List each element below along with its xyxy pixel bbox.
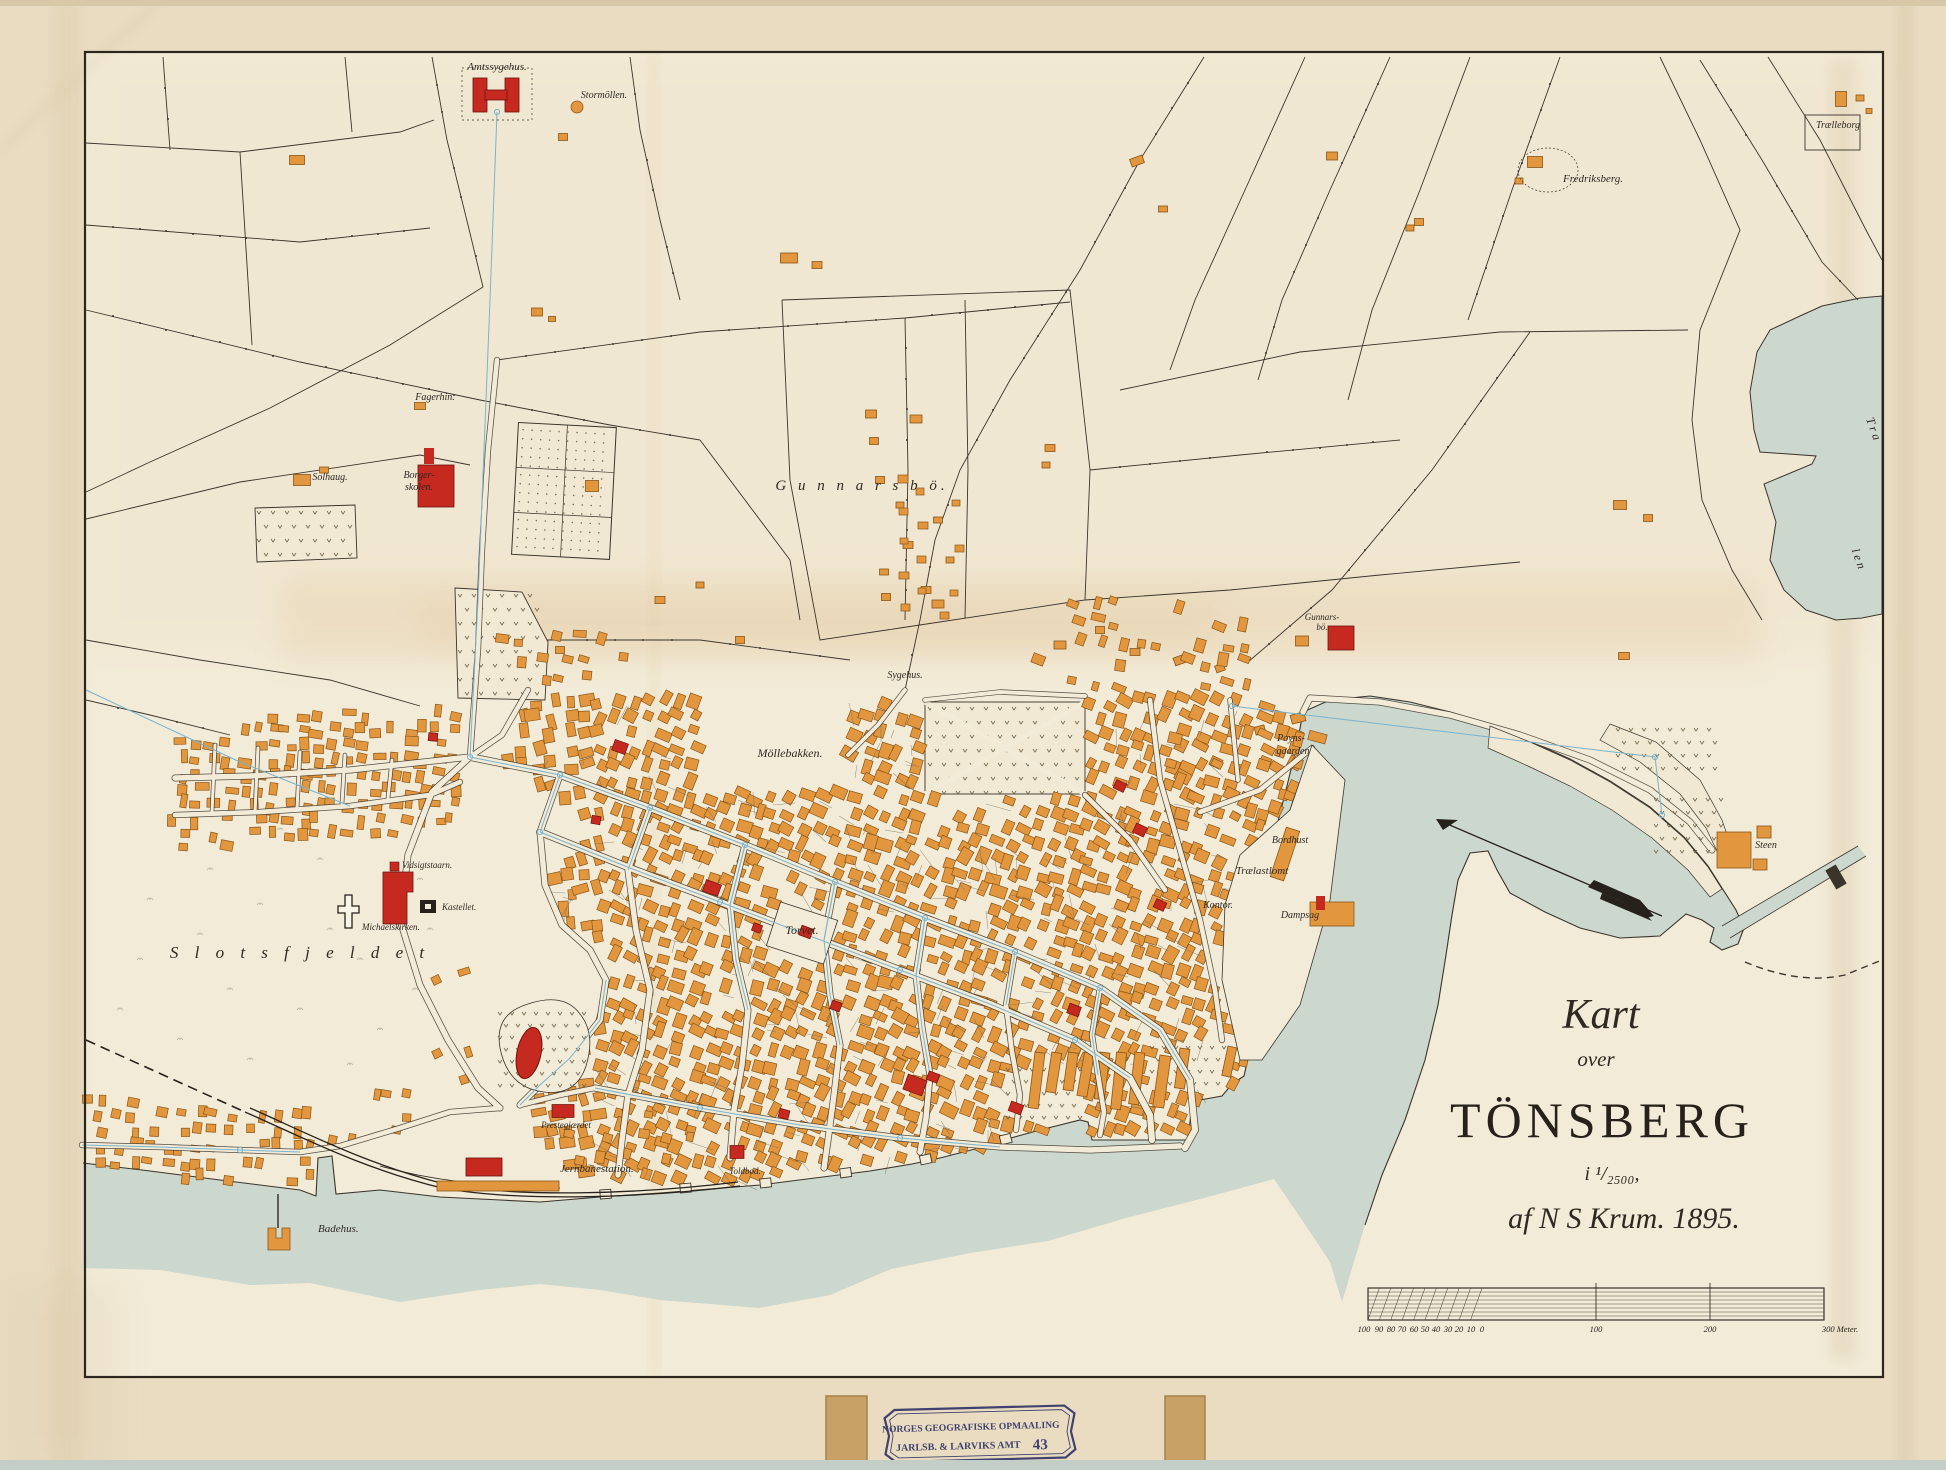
svg-text:G u n n a r s b ö.: G u n n a r s b ö. [775, 478, 948, 494]
svg-text:Borger-: Borger- [403, 470, 434, 481]
svg-text:Vidsigtstaarn.: Vidsigtstaarn. [402, 860, 452, 870]
svg-text:Poyns-: Poyns- [1276, 733, 1305, 744]
svg-text:Badehus.: Badehus. [318, 1223, 359, 1235]
svg-text:Trælleborg: Trælleborg [1816, 120, 1860, 131]
svg-text:Amtssygehus.: Amtssygehus. [466, 61, 527, 73]
svg-text:Solhaug.: Solhaug. [312, 472, 347, 483]
svg-text:10: 10 [1467, 1324, 1476, 1334]
svg-text:Jernbanestation.: Jernbanestation. [560, 1163, 634, 1175]
svg-text:S l o t s f j e l d e t: S l o t s f j e l d e t [170, 943, 430, 962]
svg-text:30: 30 [1443, 1324, 1453, 1334]
svg-text:90: 90 [1375, 1324, 1384, 1334]
svg-text:Torvet.: Torvet. [785, 923, 818, 937]
svg-text:over: over [1577, 1047, 1615, 1071]
svg-text:Steen: Steen [1755, 840, 1777, 851]
svg-text:Fredriksberg.: Fredriksberg. [1562, 173, 1623, 185]
svg-text:40: 40 [1432, 1324, 1441, 1334]
svg-text:Fagerhin.: Fagerhin. [414, 392, 455, 403]
svg-text:Prestegjærdet: Prestegjærdet [540, 1120, 591, 1130]
svg-text:TÖNSBERG: TÖNSBERG [1450, 1092, 1754, 1148]
svg-text:100: 100 [1358, 1324, 1372, 1334]
svg-text:Kastellet.: Kastellet. [441, 902, 476, 912]
svg-text:i ¹/₂₅₀₀,: i ¹/₂₅₀₀, [1585, 1163, 1640, 1185]
svg-text:Dampsag: Dampsag [1280, 910, 1319, 921]
svg-text:43: 43 [1033, 1437, 1048, 1453]
svg-text:gaarden: gaarden [1277, 746, 1310, 757]
svg-text:af N S Krum. 1895.: af N S Krum. 1895. [1508, 1202, 1740, 1235]
svg-text:Trælastlomt: Trælastlomt [1236, 865, 1290, 877]
svg-text:50: 50 [1421, 1324, 1430, 1334]
svg-text:300 Meter.: 300 Meter. [1821, 1324, 1858, 1334]
svg-text:60: 60 [1410, 1324, 1419, 1334]
svg-text:Bordhust: Bordhust [1272, 835, 1309, 846]
svg-text:skolen.: skolen. [405, 482, 433, 493]
svg-text:Kart: Kart [1561, 992, 1640, 1038]
svg-text:20: 20 [1455, 1324, 1464, 1334]
svg-text:Toldbod.: Toldbod. [729, 1166, 760, 1176]
svg-text:70: 70 [1398, 1324, 1407, 1334]
svg-text:Michaelskirken.: Michaelskirken. [361, 922, 420, 932]
svg-text:Gunnars-: Gunnars- [1305, 612, 1340, 622]
svg-text:bö.: bö. [1316, 622, 1327, 632]
svg-text:Kontor.: Kontor. [1202, 900, 1233, 911]
svg-text:200: 200 [1704, 1324, 1718, 1334]
svg-text:Stormöllen.: Stormöllen. [581, 90, 627, 101]
svg-text:100: 100 [1590, 1324, 1604, 1334]
svg-text:Sygehus.: Sygehus. [887, 670, 922, 681]
svg-text:80: 80 [1387, 1324, 1396, 1334]
svg-text:Möllebakken.: Möllebakken. [757, 746, 823, 760]
